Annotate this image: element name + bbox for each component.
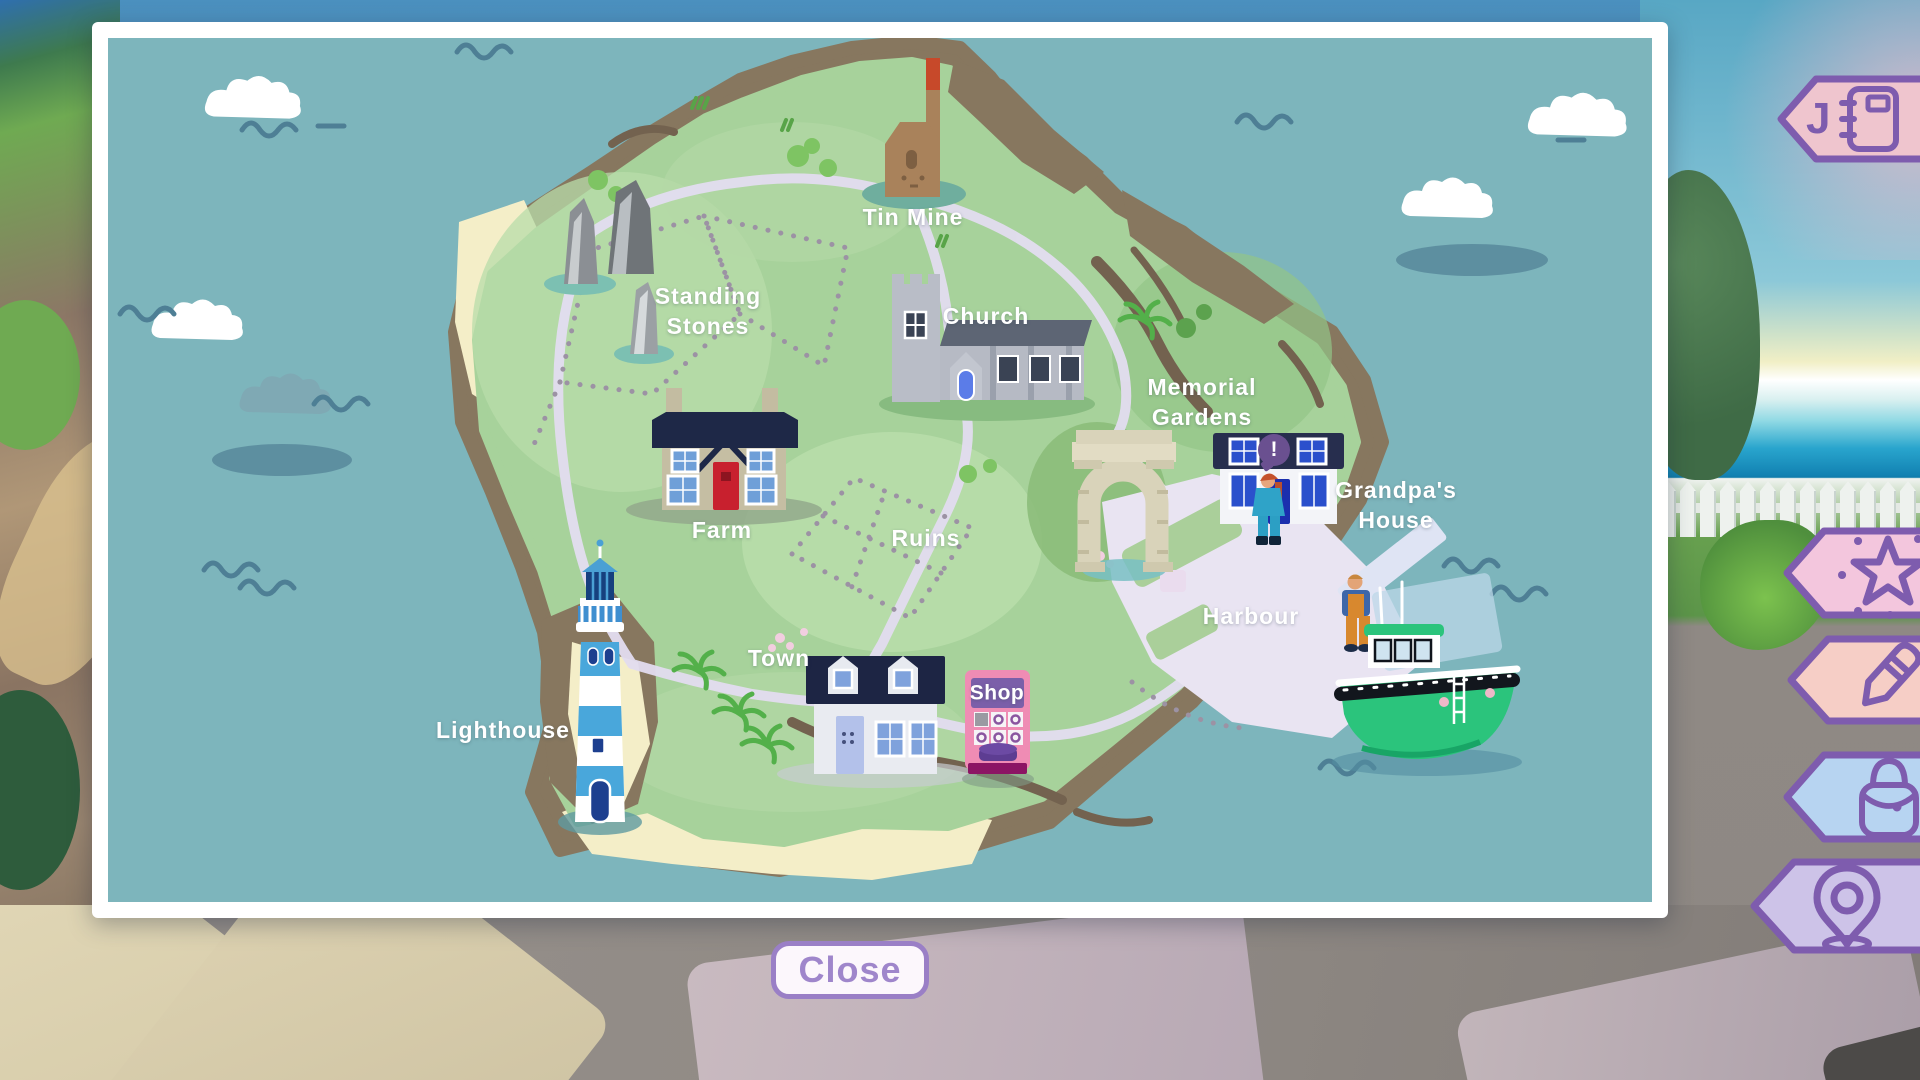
pin-icon bbox=[1794, 860, 1904, 954]
game-screen: Tin Mine StandingStones Church MemorialG… bbox=[0, 0, 1920, 1080]
map-label-lighthouse: Lighthouse bbox=[436, 716, 570, 746]
sidebar-tab-journal[interactable]: J bbox=[1774, 75, 1920, 163]
star-icon bbox=[1832, 527, 1920, 619]
paving-scenery bbox=[0, 905, 1920, 1080]
journal-icon bbox=[1838, 84, 1902, 154]
sidebar-tab-star[interactable] bbox=[1780, 527, 1920, 619]
map-label-standing-stones: StandingStones bbox=[655, 282, 761, 342]
map-label-church: Church bbox=[943, 302, 1030, 332]
close-button[interactable]: Close bbox=[771, 941, 929, 999]
map-label-memorial-gardens: MemorialGardens bbox=[1148, 373, 1257, 433]
sidebar-tab-pin[interactable] bbox=[1746, 858, 1920, 954]
map-label-grandpas-house: Grandpa'sHouse bbox=[1335, 476, 1457, 536]
map-label-harbour: Harbour bbox=[1203, 602, 1299, 632]
pencil-icon bbox=[1836, 635, 1920, 725]
sidebar-tab-bag[interactable] bbox=[1780, 751, 1920, 843]
sidebar-tab-pencil[interactable] bbox=[1784, 635, 1920, 725]
map-label-farm: Farm bbox=[692, 516, 752, 546]
map-label-tin-mine: Tin Mine bbox=[863, 203, 964, 233]
bag-icon bbox=[1838, 755, 1920, 841]
island-map bbox=[108, 38, 1652, 902]
journal-letter: J bbox=[1806, 94, 1830, 144]
map-label-town: Town bbox=[748, 644, 810, 674]
quest-marker[interactable]: ! bbox=[1258, 434, 1290, 466]
map-label-ruins: Ruins bbox=[892, 524, 961, 554]
island-map-panel bbox=[92, 22, 1668, 918]
map-label-shop: Shop bbox=[970, 679, 1025, 706]
